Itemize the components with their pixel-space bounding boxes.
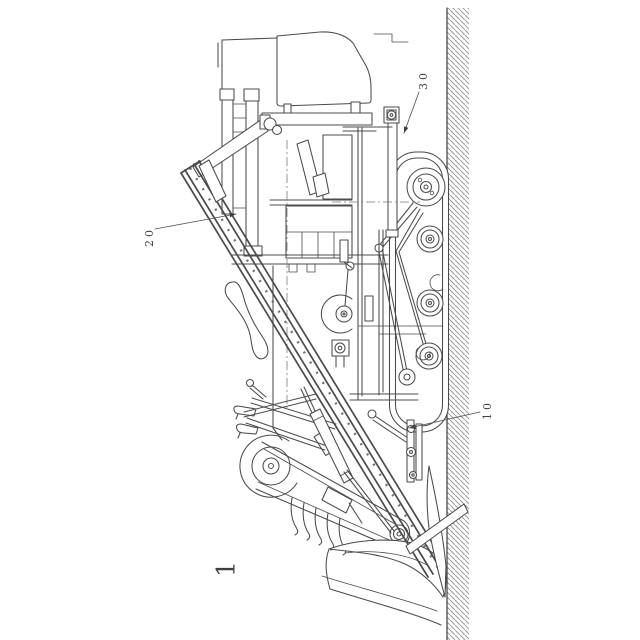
ground-hatching <box>447 8 469 640</box>
track-wheel-2 <box>417 226 443 252</box>
crawler-track <box>358 107 449 432</box>
ref-numeral-20: 20 <box>143 227 156 247</box>
label-30: 30 <box>404 70 430 133</box>
patent-figure-page: 30 20 10 1 <box>0 0 640 640</box>
patent-line-drawing: 30 20 10 1 <box>0 0 640 640</box>
track-idler-wheel <box>399 369 415 385</box>
hitch-claws <box>234 380 266 439</box>
track-wheel-top <box>407 168 445 206</box>
belt-pulley-assembly <box>321 240 373 367</box>
ref-numeral-10: 10 <box>481 400 494 420</box>
leader-line-30 <box>404 92 419 133</box>
track-wheel-3 <box>417 290 443 316</box>
deck <box>262 113 372 125</box>
figure-number: 1 <box>212 561 241 577</box>
leader-line-20 <box>155 214 236 229</box>
ref-numeral-30: 30 <box>417 70 430 90</box>
cab <box>277 32 371 106</box>
